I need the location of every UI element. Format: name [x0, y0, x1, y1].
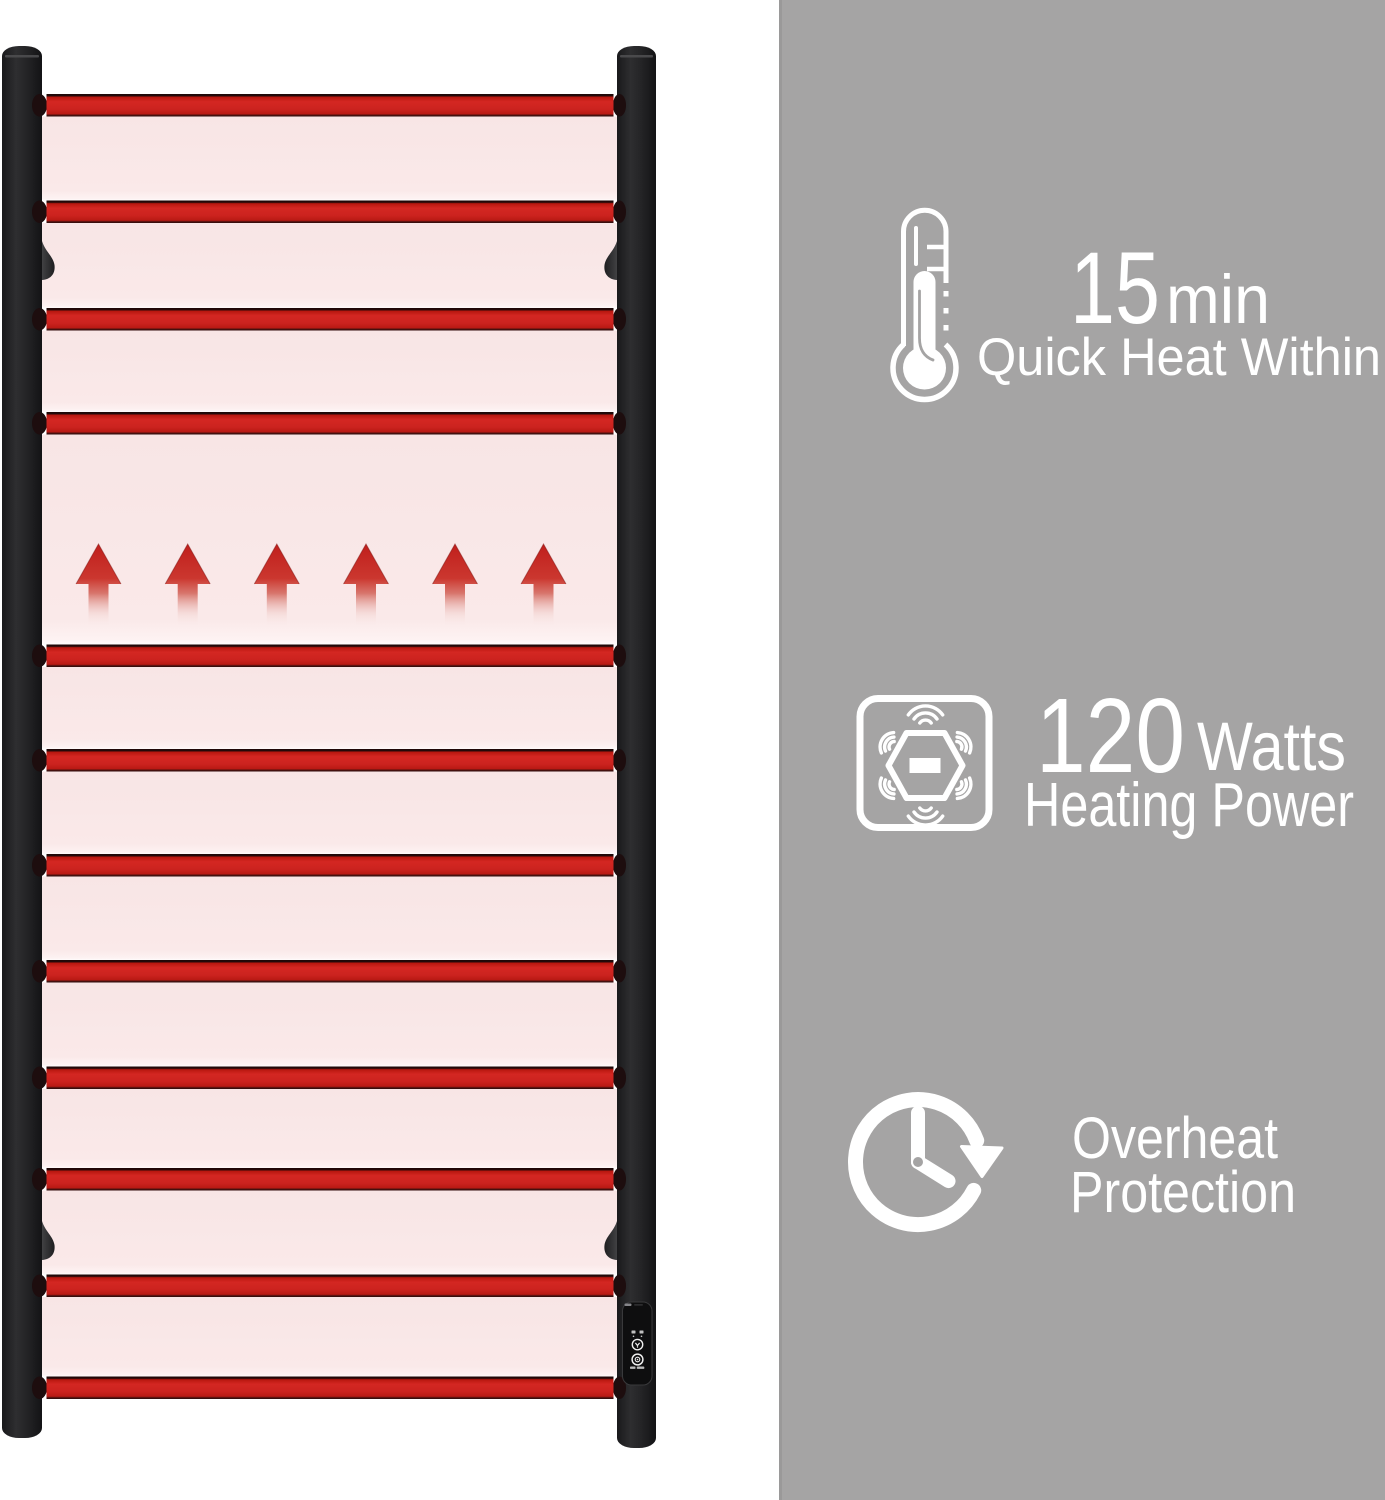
svg-text:Heating Power: Heating Power	[1024, 771, 1354, 840]
svg-text:Quick Heat Within: Quick Heat Within	[977, 328, 1381, 387]
svg-text:Protection: Protection	[1070, 1160, 1296, 1225]
svg-text:min: min	[1166, 261, 1270, 338]
